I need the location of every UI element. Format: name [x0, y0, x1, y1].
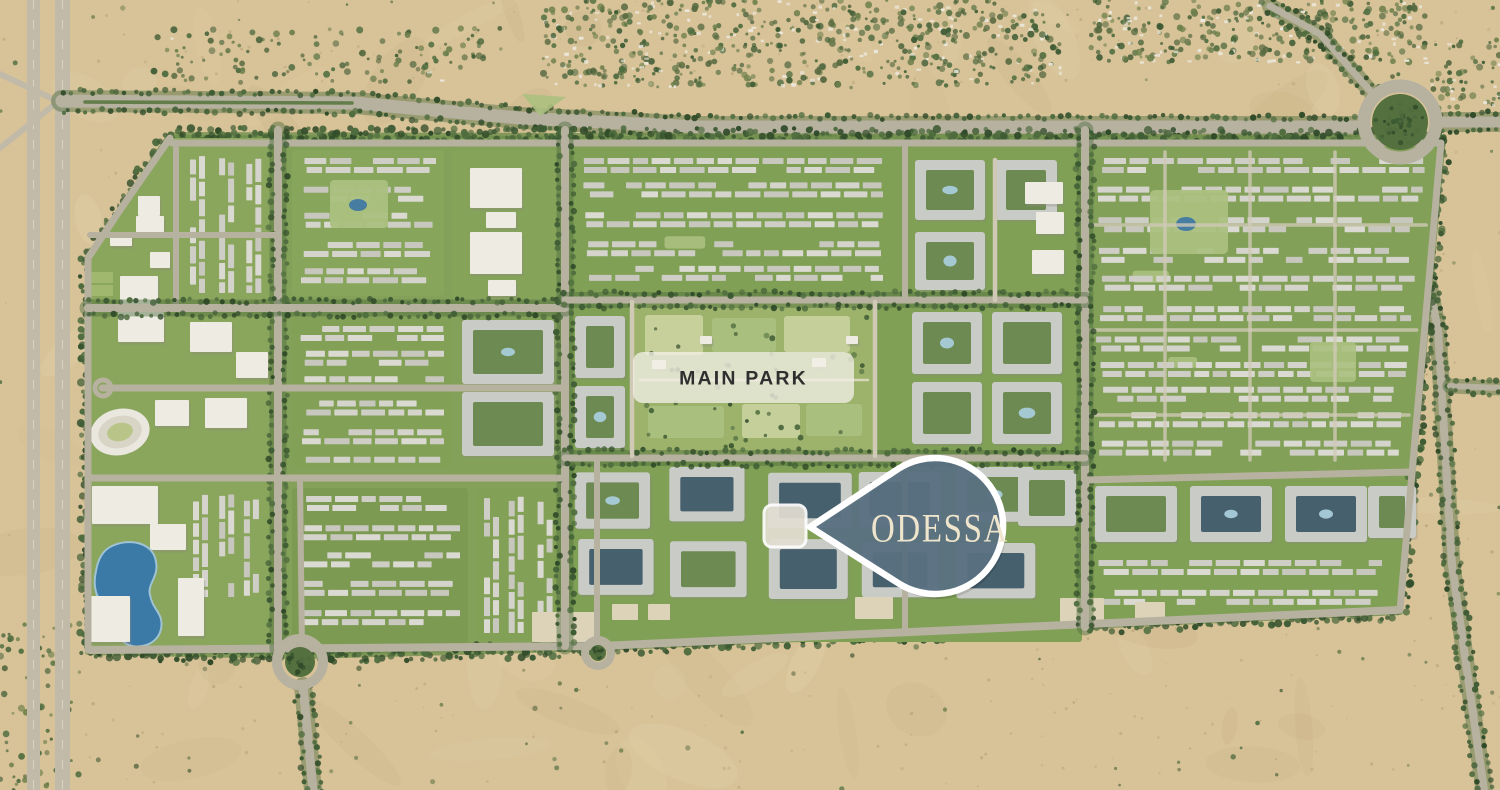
main-park-label: MAIN PARK: [679, 368, 808, 390]
master-plan-map: MAIN PARK ODESSA: [0, 0, 1500, 790]
odessa-pin-label: ODESSA: [871, 506, 1009, 551]
odessa-plot-highlight: [764, 505, 806, 547]
main-park-callout: MAIN PARK: [633, 352, 854, 403]
site-plan-canvas: MAIN PARK ODESSA: [0, 0, 1500, 790]
